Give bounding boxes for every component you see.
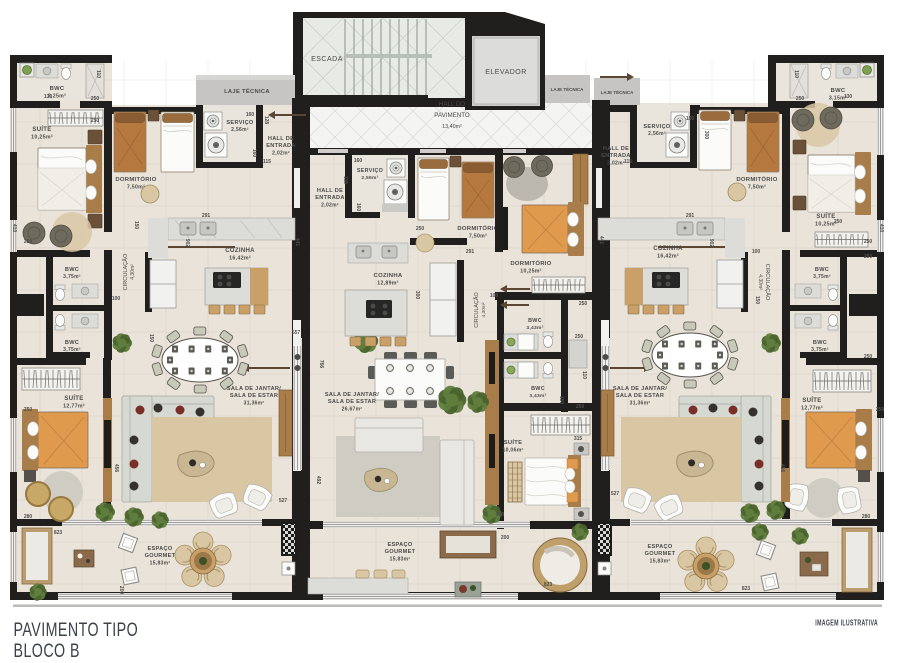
svg-text:BWC3,75m²: BWC3,75m² bbox=[63, 340, 81, 353]
svg-text:CIRCULAÇÃO: CIRCULAÇÃO bbox=[122, 253, 129, 290]
svg-text:527: 527 bbox=[279, 498, 288, 504]
svg-text:4,30m²: 4,30m² bbox=[481, 302, 487, 317]
svg-text:300: 300 bbox=[703, 131, 709, 140]
svg-text:441: 441 bbox=[598, 236, 604, 245]
svg-text:441: 441 bbox=[294, 238, 300, 247]
svg-text:COZINHA16,42m²: COZINHA16,42m² bbox=[653, 246, 683, 260]
svg-text:291: 291 bbox=[202, 213, 211, 219]
svg-text:250: 250 bbox=[579, 301, 588, 307]
svg-text:456: 456 bbox=[779, 464, 785, 473]
svg-text:160: 160 bbox=[251, 149, 257, 158]
svg-text:BWC3,75m²: BWC3,75m² bbox=[63, 267, 81, 280]
svg-text:200: 200 bbox=[118, 586, 124, 595]
svg-text:130: 130 bbox=[44, 94, 53, 100]
svg-text:250: 250 bbox=[864, 239, 873, 245]
svg-text:CIRCULAÇÃO: CIRCULAÇÃO bbox=[473, 292, 480, 327]
svg-text:COZINHA12,89m²: COZINHA12,89m² bbox=[374, 273, 403, 287]
svg-text:LAJE TÉCNICA: LAJE TÉCNICA bbox=[224, 87, 270, 95]
svg-text:LAJE TÉCNICA: LAJE TÉCNICA bbox=[601, 88, 635, 95]
svg-text:110: 110 bbox=[95, 70, 101, 78]
svg-text:SUÍTE10,25m²: SUÍTE10,25m² bbox=[31, 125, 53, 141]
svg-text:ESCADA: ESCADA bbox=[311, 56, 343, 63]
svg-text:4,30m²: 4,30m² bbox=[757, 274, 763, 290]
svg-text:BLOCO B: BLOCO B bbox=[14, 639, 80, 658]
svg-text:250: 250 bbox=[575, 334, 584, 340]
svg-text:150: 150 bbox=[754, 296, 760, 305]
svg-text:315: 315 bbox=[574, 436, 583, 442]
svg-text:300: 300 bbox=[414, 291, 420, 300]
svg-text:IMAGEM ILUSTRATIVA: IMAGEM ILUSTRATIVA bbox=[815, 619, 878, 627]
svg-text:527: 527 bbox=[611, 491, 620, 497]
svg-text:280: 280 bbox=[862, 514, 871, 520]
svg-text:250: 250 bbox=[24, 407, 33, 413]
svg-text:100: 100 bbox=[490, 293, 499, 299]
svg-text:115: 115 bbox=[624, 159, 632, 165]
svg-text:823: 823 bbox=[54, 530, 63, 536]
svg-text:LAJE TÉCNICA: LAJE TÉCNICA bbox=[551, 85, 585, 92]
svg-text:250: 250 bbox=[864, 254, 873, 260]
svg-text:160: 160 bbox=[355, 203, 361, 212]
svg-text:SUÍTE12,77m²: SUÍTE12,77m² bbox=[801, 396, 823, 412]
svg-text:SUÍTE12,77m²: SUÍTE12,77m² bbox=[63, 394, 85, 410]
svg-text:100: 100 bbox=[112, 296, 121, 302]
svg-text:291: 291 bbox=[466, 249, 475, 255]
svg-text:BWC3,75m²: BWC3,75m² bbox=[813, 267, 831, 280]
svg-text:200: 200 bbox=[501, 535, 510, 541]
svg-text:766: 766 bbox=[318, 360, 324, 369]
svg-text:130: 130 bbox=[844, 94, 853, 100]
svg-text:160: 160 bbox=[354, 158, 363, 164]
svg-text:115: 115 bbox=[342, 176, 348, 184]
svg-text:100: 100 bbox=[752, 249, 761, 255]
svg-text:PAVIMENTO TIPO: PAVIMENTO TIPO bbox=[14, 618, 139, 641]
svg-text:128: 128 bbox=[263, 116, 269, 125]
svg-text:250: 250 bbox=[24, 239, 33, 245]
svg-text:COZINHA16,42m²: COZINHA16,42m² bbox=[225, 248, 255, 262]
svg-text:150: 150 bbox=[148, 334, 154, 343]
svg-text:492: 492 bbox=[315, 476, 321, 485]
svg-text:250: 250 bbox=[91, 96, 100, 102]
svg-text:150: 150 bbox=[133, 221, 139, 230]
svg-text:250: 250 bbox=[796, 96, 805, 102]
svg-text:150: 150 bbox=[558, 396, 564, 405]
svg-text:110: 110 bbox=[793, 70, 799, 78]
svg-text:456: 456 bbox=[113, 464, 119, 473]
svg-text:300: 300 bbox=[496, 512, 505, 518]
svg-text:902: 902 bbox=[708, 239, 714, 248]
svg-text:BWC3,75m²: BWC3,75m² bbox=[811, 340, 829, 353]
svg-text:250: 250 bbox=[576, 404, 585, 410]
svg-text:902: 902 bbox=[184, 239, 190, 248]
svg-text:410: 410 bbox=[11, 224, 17, 233]
svg-text:115: 115 bbox=[263, 159, 271, 165]
svg-text:280: 280 bbox=[24, 514, 33, 520]
svg-text:110: 110 bbox=[581, 371, 587, 379]
svg-text:250: 250 bbox=[864, 354, 873, 360]
svg-text:CIRCULAÇÃO: CIRCULAÇÃO bbox=[764, 264, 771, 301]
svg-text:250: 250 bbox=[416, 226, 425, 232]
svg-text:4,30m²: 4,30m² bbox=[130, 264, 136, 280]
svg-text:SUÍTE10,06m²: SUÍTE10,06m² bbox=[502, 438, 523, 453]
svg-text:823: 823 bbox=[742, 586, 751, 592]
svg-text:ELEVADOR: ELEVADOR bbox=[485, 69, 527, 76]
svg-text:250: 250 bbox=[91, 118, 100, 124]
svg-text:250: 250 bbox=[876, 407, 885, 413]
svg-text:410: 410 bbox=[878, 224, 884, 233]
svg-text:160: 160 bbox=[246, 112, 255, 118]
svg-text:557: 557 bbox=[292, 330, 301, 336]
svg-text:160: 160 bbox=[686, 116, 695, 122]
svg-text:823: 823 bbox=[544, 582, 553, 588]
svg-text:250: 250 bbox=[834, 219, 843, 225]
svg-text:291: 291 bbox=[686, 213, 695, 219]
